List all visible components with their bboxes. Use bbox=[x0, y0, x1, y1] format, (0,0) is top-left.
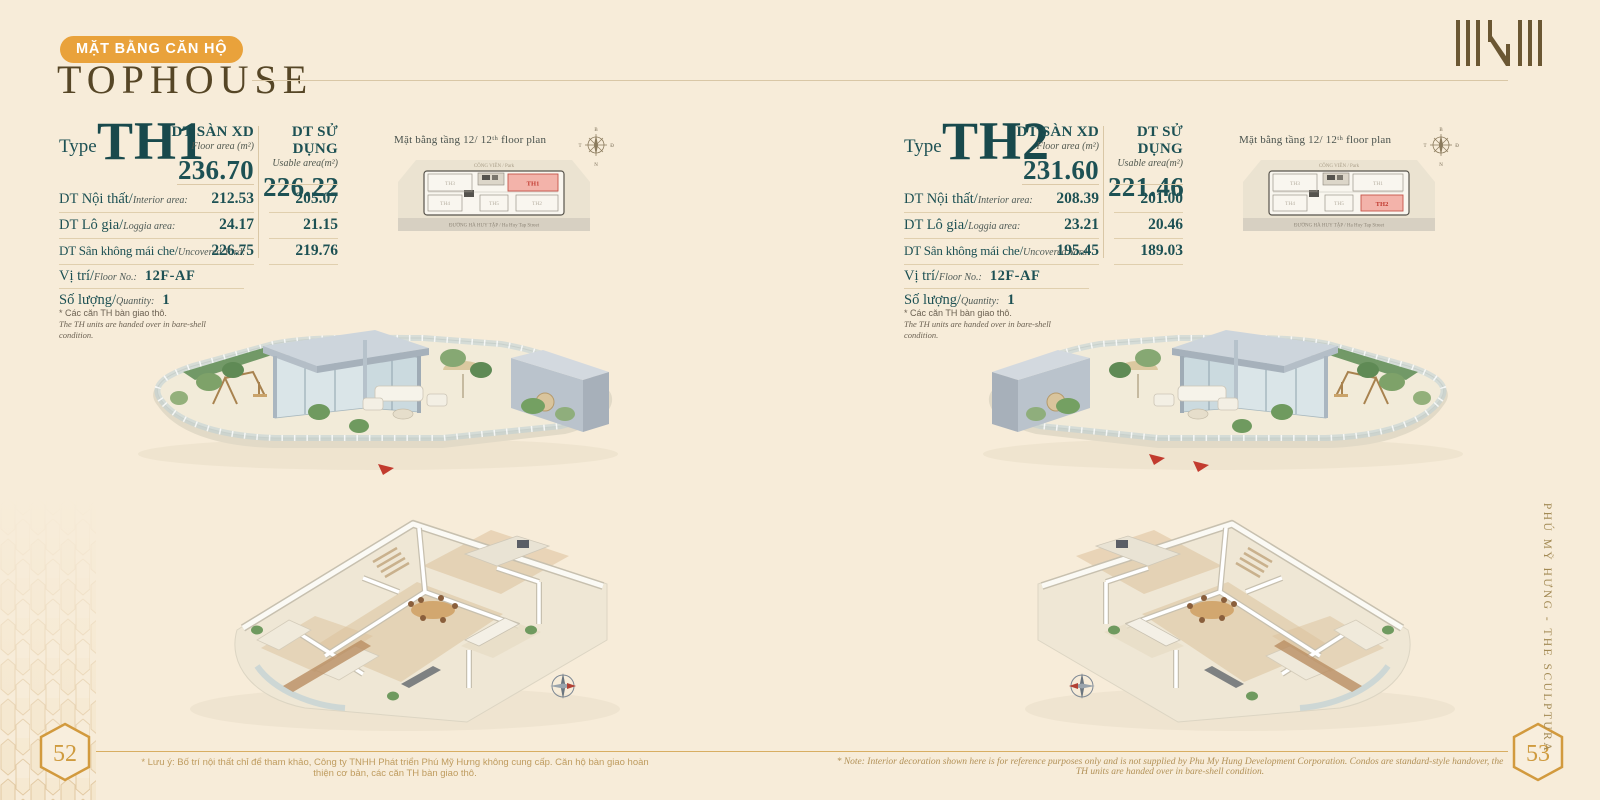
row-divider bbox=[904, 264, 1099, 265]
value-underline bbox=[177, 184, 254, 185]
svg-text:52: 52 bbox=[53, 741, 77, 767]
row-divider bbox=[269, 264, 338, 265]
spec-row-loggia: DT Lô gia/Loggia area: 24.17 21.15 bbox=[59, 216, 340, 236]
floor-area-subtitle: Floor area (m²) bbox=[1006, 141, 1099, 152]
location-row: Vị trí/Floor No.:12F-AF bbox=[904, 268, 1040, 285]
location-value: 12F-AF bbox=[145, 268, 196, 284]
spec-row-interior: DT Nội thất/Interior area: 212.53 205.07 bbox=[59, 190, 340, 210]
svg-text:TH5: TH5 bbox=[489, 201, 499, 207]
row-usable-value: 219.76 bbox=[295, 242, 338, 260]
svg-text:N: N bbox=[594, 163, 598, 168]
value-underline bbox=[1022, 184, 1099, 185]
quantity-label-vi: Số lượng/ bbox=[904, 292, 961, 308]
row-label-vi: DT Sân không mái che/ bbox=[59, 243, 178, 258]
highlighted-unit: TH1 bbox=[527, 181, 540, 188]
unit-panel-th1: Type TH1 DT SÀN XD Floor area (m²) 236.7… bbox=[57, 118, 902, 768]
row-label-vi: DT Nội thất/ bbox=[59, 191, 133, 207]
svg-text:Đ: Đ bbox=[610, 144, 614, 149]
location-value: 12F-AF bbox=[990, 268, 1041, 284]
spec-row-loggia: DT Lô gia/Loggia area: 23.21 20.46 bbox=[904, 216, 1185, 236]
row-divider bbox=[1114, 212, 1183, 213]
row-label-en: Interior area: bbox=[978, 195, 1033, 206]
svg-text:B: B bbox=[594, 128, 598, 133]
row-divider bbox=[1114, 238, 1183, 239]
row-divider bbox=[59, 238, 254, 239]
svg-text:Đ: Đ bbox=[1455, 144, 1459, 149]
row-label-vi: DT Nội thất/ bbox=[904, 191, 978, 207]
row-label-vi: DT Sân không mái che/ bbox=[904, 243, 1023, 258]
floor-area-subtitle: Floor area (m²) bbox=[161, 141, 254, 152]
row-divider bbox=[904, 212, 1099, 213]
page-number-right: 53 bbox=[1510, 721, 1566, 783]
svg-text:B: B bbox=[1439, 128, 1443, 133]
svg-text:N: N bbox=[1439, 163, 1443, 168]
street-label: ĐƯỜNG HÀ HUY TẬP / Ha Huy Tap Street bbox=[1294, 223, 1385, 229]
usable-area-title: DT SỬ DỤNG bbox=[1108, 124, 1183, 158]
type-label: Type bbox=[59, 136, 97, 158]
floor-area-value: 231.60 bbox=[1006, 155, 1099, 186]
svg-text:TH3: TH3 bbox=[1290, 181, 1300, 187]
key-plan: ĐƯỜNG HÀ HUY TẬP / Ha Huy Tap Street CÔN… bbox=[1239, 154, 1439, 254]
interior-floorplan-render bbox=[165, 434, 635, 744]
row-usable-value: 205.07 bbox=[295, 190, 338, 208]
spec-row-uncovered-yard: DT Sân không mái che/Uncovered Yard: 226… bbox=[59, 242, 340, 262]
row-usable-value: 201.00 bbox=[1140, 190, 1183, 208]
park-label: CÔNG VIÊN / Park bbox=[1319, 163, 1360, 169]
row-floor-value: 212.53 bbox=[211, 190, 254, 208]
unit-panel-th2: Type TH2 DT SÀN XD Floor area (m²) 231.6… bbox=[902, 118, 1600, 768]
interior-floorplan-render bbox=[1010, 434, 1480, 744]
row-divider bbox=[1114, 264, 1183, 265]
glass-pavilion bbox=[1172, 330, 1338, 418]
location-label-vi: Vị trí/ bbox=[904, 268, 939, 284]
footer-note-en: * Note: Interior decoration shown here i… bbox=[830, 757, 1510, 777]
location-label-en: Floor No.: bbox=[939, 272, 982, 283]
highlighted-unit: TH2 bbox=[1376, 201, 1389, 208]
header-divider bbox=[252, 80, 1508, 81]
floor-area-title: DT SÀN XD bbox=[161, 124, 254, 141]
row-divider bbox=[59, 212, 254, 213]
spec-row-uncovered-yard: DT Sân không mái che/Uncovered Yard: 195… bbox=[904, 242, 1185, 262]
svg-text:TH1: TH1 bbox=[1373, 181, 1383, 187]
row-divider bbox=[269, 238, 338, 239]
row-floor-value: 23.21 bbox=[1064, 216, 1099, 234]
usable-area-subtitle: Usable area(m²) bbox=[1108, 158, 1183, 169]
row-label-en: Interior area: bbox=[133, 195, 188, 206]
row-label-vi: DT Lô gia/ bbox=[904, 217, 968, 233]
key-plan: ĐƯỜNG HÀ HUY TẬP / Ha Huy Tap Street CÔN… bbox=[394, 154, 594, 254]
svg-text:TH2: TH2 bbox=[532, 201, 542, 207]
miniplan-title: Mặt bằng tầng 12/ 12ᵗʰ floor plan bbox=[394, 134, 546, 146]
svg-text:TH4: TH4 bbox=[440, 201, 450, 207]
usable-area-title: DT SỬ DỤNG bbox=[263, 124, 338, 158]
footer-divider bbox=[96, 751, 1508, 752]
miniplan-th1: Mặt bằng tầng 12/ 12ᵗʰ floor plan B Đ N … bbox=[394, 130, 616, 270]
row-usable-value: 20.46 bbox=[1148, 216, 1183, 234]
usable-area-subtitle: Usable area(m²) bbox=[263, 158, 338, 169]
brochure-page: MẶT BẰNG CĂN HỘ TOPHOUSE Type TH1 DT SÀN… bbox=[0, 0, 1600, 800]
row-label-vi: DT Lô gia/ bbox=[59, 217, 123, 233]
svg-text:TH5: TH5 bbox=[1334, 201, 1344, 207]
footer-note-vi: * Lưu ý: Bố trí nội thất chỉ để tham khả… bbox=[130, 757, 660, 779]
sculptura-logo-icon bbox=[1452, 14, 1548, 72]
quantity-label-vi: Số lượng/ bbox=[59, 292, 116, 308]
street-label: ĐƯỜNG HÀ HUY TẬP / Ha Huy Tap Street bbox=[449, 223, 540, 229]
row-label-en: Loggia area: bbox=[968, 221, 1020, 232]
entry-arrow-icon bbox=[377, 462, 395, 476]
row-usable-value: 21.15 bbox=[303, 216, 338, 234]
value-underline bbox=[1114, 184, 1183, 185]
floor-area-value: 236.70 bbox=[161, 155, 254, 186]
row-label-en: Loggia area: bbox=[123, 221, 175, 232]
row-floor-value: 226.75 bbox=[211, 242, 254, 260]
floor-area-title: DT SÀN XD bbox=[1006, 124, 1099, 141]
row-floor-value: 195.45 bbox=[1056, 242, 1099, 260]
value-underline bbox=[269, 184, 338, 185]
park-label: CÔNG VIÊN / Park bbox=[474, 163, 515, 169]
location-row: Vị trí/Floor No.:12F-AF bbox=[59, 268, 195, 285]
side-brand-text: PHÚ MỸ HƯNG - THE SCULPTURA bbox=[1541, 485, 1553, 771]
page-number-left: 52 bbox=[37, 721, 93, 783]
row-divider bbox=[904, 238, 1099, 239]
location-label-vi: Vị trí/ bbox=[59, 268, 94, 284]
row-floor-value: 24.17 bbox=[219, 216, 254, 234]
miniplan-th2: Mặt bằng tầng 12/ 12ᵗʰ floor plan B Đ N … bbox=[1239, 130, 1461, 270]
miniplan-title: Mặt bằng tầng 12/ 12ᵗʰ floor plan bbox=[1239, 134, 1391, 146]
location-label-en: Floor No.: bbox=[94, 272, 137, 283]
svg-text:T: T bbox=[578, 144, 581, 149]
row-divider bbox=[269, 212, 338, 213]
row-divider bbox=[59, 264, 254, 265]
type-label: Type bbox=[904, 136, 942, 158]
glass-pavilion bbox=[263, 330, 429, 418]
floor-area-column: DT SÀN XD Floor area (m²) 231.60 bbox=[1006, 124, 1099, 186]
svg-text:TH3: TH3 bbox=[445, 181, 455, 187]
entry-arrow-icon bbox=[1192, 459, 1210, 473]
svg-text:T: T bbox=[1423, 144, 1426, 149]
spec-row-interior: DT Nội thất/Interior area: 208.39 201.00 bbox=[904, 190, 1185, 210]
svg-text:TH4: TH4 bbox=[1285, 201, 1295, 207]
row-usable-value: 189.03 bbox=[1140, 242, 1183, 260]
floor-area-column: DT SÀN XD Floor area (m²) 236.70 bbox=[161, 124, 254, 186]
row-floor-value: 208.39 bbox=[1056, 190, 1099, 208]
entry-arrow-icon bbox=[1148, 452, 1166, 466]
